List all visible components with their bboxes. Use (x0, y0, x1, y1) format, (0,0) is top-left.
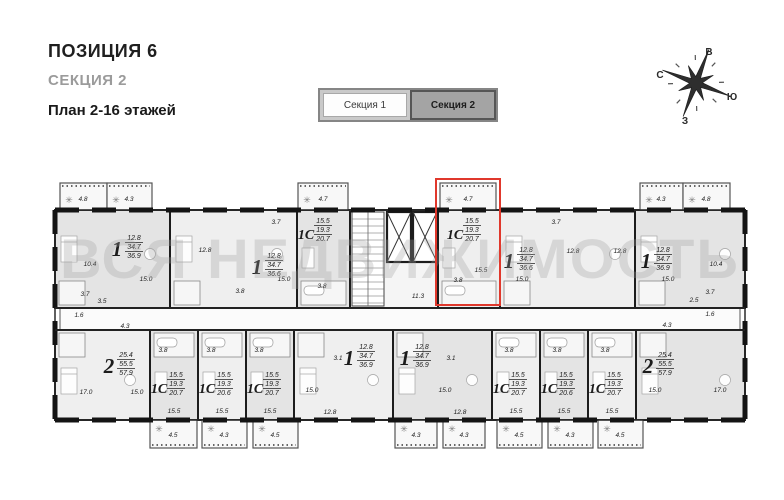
svg-text:15.5: 15.5 (607, 372, 621, 379)
room-area-label: 3.7 (271, 219, 280, 226)
svg-text:1С: 1С (541, 382, 558, 397)
svg-text:4.5: 4.5 (168, 432, 177, 439)
balcony: ✳4.7 (440, 183, 496, 210)
room-area-label: 4.3 (120, 323, 129, 330)
room-area-label: 15.0 (131, 389, 144, 396)
balcony: ✳4.8 (683, 183, 730, 210)
apartment-unit-1[interactable]: 112.834.736.9 (294, 330, 393, 420)
room-area-label: 3.8 (158, 347, 167, 354)
apartment-unit-2[interactable]: 225.455.557.9 (636, 330, 745, 420)
svg-text:4.3: 4.3 (219, 432, 228, 439)
balcony: ✳4.3 (202, 420, 247, 448)
svg-text:20.7: 20.7 (606, 390, 622, 397)
plant-icon: ✳ (207, 424, 215, 434)
plant-icon: ✳ (65, 195, 73, 205)
svg-text:55.5: 55.5 (119, 361, 133, 368)
svg-text:36.9: 36.9 (359, 362, 373, 369)
room-area-label: 3.7 (551, 219, 560, 226)
svg-text:4.3: 4.3 (565, 432, 574, 439)
svg-text:34.7: 34.7 (359, 353, 374, 360)
svg-text:1С: 1С (247, 382, 264, 397)
plant-icon: ✳ (258, 424, 266, 434)
room-area-label: 1.6 (74, 312, 83, 319)
svg-text:15.5: 15.5 (316, 218, 330, 225)
svg-text:36.9: 36.9 (415, 362, 429, 369)
svg-text:12.8: 12.8 (415, 344, 429, 351)
svg-text:20.7: 20.7 (510, 390, 526, 397)
svg-text:19.3: 19.3 (559, 381, 573, 388)
apartment-unit-1С[interactable]: 1С15.519.320.7 (150, 330, 198, 420)
page: ПОЗИЦИЯ 6 СЕКЦИЯ 2 План 2-16 этажей Секц… (0, 0, 784, 500)
svg-text:2: 2 (103, 354, 115, 378)
room-area-label: 15.0 (649, 387, 662, 394)
balcony: ✳4.3 (443, 420, 485, 448)
svg-text:15.5: 15.5 (217, 372, 231, 379)
svg-text:1С: 1С (493, 382, 510, 397)
room-area-label: 15.5 (606, 408, 619, 415)
svg-text:19.3: 19.3 (607, 381, 621, 388)
room-area-label: 15.0 (439, 387, 452, 394)
balcony: ✳4.5 (150, 420, 197, 448)
balcony: ✳4.3 (548, 420, 593, 448)
plant-icon: ✳ (445, 195, 453, 205)
balcony: ✳4.5 (497, 420, 542, 448)
room-area-label: 3.8 (206, 347, 215, 354)
plant-icon: ✳ (645, 195, 653, 205)
svg-text:20.7: 20.7 (168, 390, 184, 397)
svg-text:4.8: 4.8 (701, 196, 710, 203)
svg-text:4.8: 4.8 (78, 196, 87, 203)
plant-icon: ✳ (400, 424, 408, 434)
balcony: ✳4.8 (60, 183, 107, 210)
plant-icon: ✳ (303, 195, 311, 205)
svg-text:4.3: 4.3 (124, 196, 133, 203)
balcony: ✳4.5 (598, 420, 643, 448)
apartment-unit-1С[interactable]: 1С15.519.320.6 (198, 330, 246, 420)
room-area-label: 17.0 (80, 389, 93, 396)
svg-text:1С: 1С (589, 382, 606, 397)
plant-icon: ✳ (603, 424, 611, 434)
plant-icon: ✳ (448, 424, 456, 434)
room-area-label: 15.0 (306, 387, 319, 394)
room-area-label: 12.8 (324, 409, 337, 416)
svg-text:4.3: 4.3 (459, 432, 468, 439)
svg-text:55.5: 55.5 (658, 361, 672, 368)
room-area-label: 15.5 (558, 408, 571, 415)
svg-text:4.5: 4.5 (514, 432, 523, 439)
svg-text:2: 2 (642, 354, 654, 378)
room-area-label: 3.1 (333, 355, 342, 362)
corridor-area-label: 11.3 (412, 293, 425, 300)
balcony: ✳4.7 (298, 183, 348, 210)
svg-text:1С: 1С (199, 382, 216, 397)
room-area-label: 3.1 (446, 355, 455, 362)
svg-text:20.6: 20.6 (216, 390, 231, 397)
room-area-label: 15.5 (264, 408, 277, 415)
svg-text:15.5: 15.5 (559, 372, 573, 379)
corridor (60, 308, 740, 330)
svg-text:4.7: 4.7 (318, 196, 327, 203)
plant-icon: ✳ (688, 195, 696, 205)
apartment-unit-1С[interactable]: 1С15.519.320.6 (540, 330, 588, 420)
room-area-label: 3.8 (504, 347, 513, 354)
room-area-label: 3.8 (254, 347, 263, 354)
apartment-unit-2[interactable]: 225.455.557.9 (55, 330, 150, 420)
room-area-label: 3.7 (80, 291, 89, 298)
apartment-unit-1С[interactable]: 1С15.519.320.7 (588, 330, 636, 420)
svg-text:4.5: 4.5 (270, 432, 279, 439)
svg-text:20.6: 20.6 (558, 390, 573, 397)
balcony: ✳4.5 (253, 420, 298, 448)
apartment-unit-1С[interactable]: 1С15.519.320.7 (492, 330, 540, 420)
svg-text:20.7: 20.7 (264, 390, 280, 397)
plant-icon: ✳ (553, 424, 561, 434)
room-area-label: 12.8 (454, 409, 467, 416)
balcony: ✳4.3 (395, 420, 437, 448)
svg-text:4.7: 4.7 (463, 196, 472, 203)
room-area-label: 15.5 (510, 408, 523, 415)
room-area-label: 17.0 (714, 387, 727, 394)
svg-text:4.5: 4.5 (615, 432, 624, 439)
room-area-label: 3.5 (97, 298, 106, 305)
room-area-label: 3.8 (600, 347, 609, 354)
room-area-label: 2.5 (688, 297, 698, 304)
svg-text:25.4: 25.4 (118, 352, 133, 359)
apartment-unit-1С[interactable]: 1С15.519.320.7 (246, 330, 294, 420)
svg-text:1: 1 (400, 346, 411, 370)
svg-text:19.3: 19.3 (169, 381, 183, 388)
floor-plan: 112.834.736.9112.834.736.61С15.519.320.7… (0, 0, 784, 500)
svg-text:15.5: 15.5 (265, 372, 279, 379)
svg-text:19.3: 19.3 (265, 381, 279, 388)
room-area-label: 15.5 (216, 408, 229, 415)
plant-icon: ✳ (112, 195, 120, 205)
room-area-label: 4.3 (662, 322, 671, 329)
svg-text:1: 1 (344, 346, 355, 370)
balcony: ✳4.3 (107, 183, 152, 210)
room-area-label: 15.5 (168, 408, 181, 415)
svg-text:15.5: 15.5 (511, 372, 525, 379)
svg-text:4.3: 4.3 (656, 196, 665, 203)
svg-text:1С: 1С (151, 382, 168, 397)
watermark: ВСЯ НЕДВИЖИМОСТЬ (60, 227, 740, 290)
room-area-label: 3.8 (552, 347, 561, 354)
svg-text:15.5: 15.5 (465, 218, 479, 225)
plant-icon: ✳ (155, 424, 163, 434)
svg-text:19.3: 19.3 (511, 381, 525, 388)
svg-text:4.3: 4.3 (411, 432, 420, 439)
svg-text:12.8: 12.8 (359, 344, 373, 351)
balcony: ✳4.3 (640, 183, 683, 210)
apartment-unit-1[interactable]: 112.834.736.9 (393, 330, 492, 420)
svg-text:57.9: 57.9 (658, 370, 672, 377)
room-area-label: 1.6 (705, 311, 714, 318)
svg-text:15.5: 15.5 (169, 372, 183, 379)
room-area-label: 3.7 (705, 289, 714, 296)
svg-text:34.7: 34.7 (415, 353, 430, 360)
svg-text:19.3: 19.3 (217, 381, 231, 388)
svg-text:25.4: 25.4 (657, 352, 672, 359)
plant-icon: ✳ (502, 424, 510, 434)
svg-text:57.9: 57.9 (119, 370, 133, 377)
